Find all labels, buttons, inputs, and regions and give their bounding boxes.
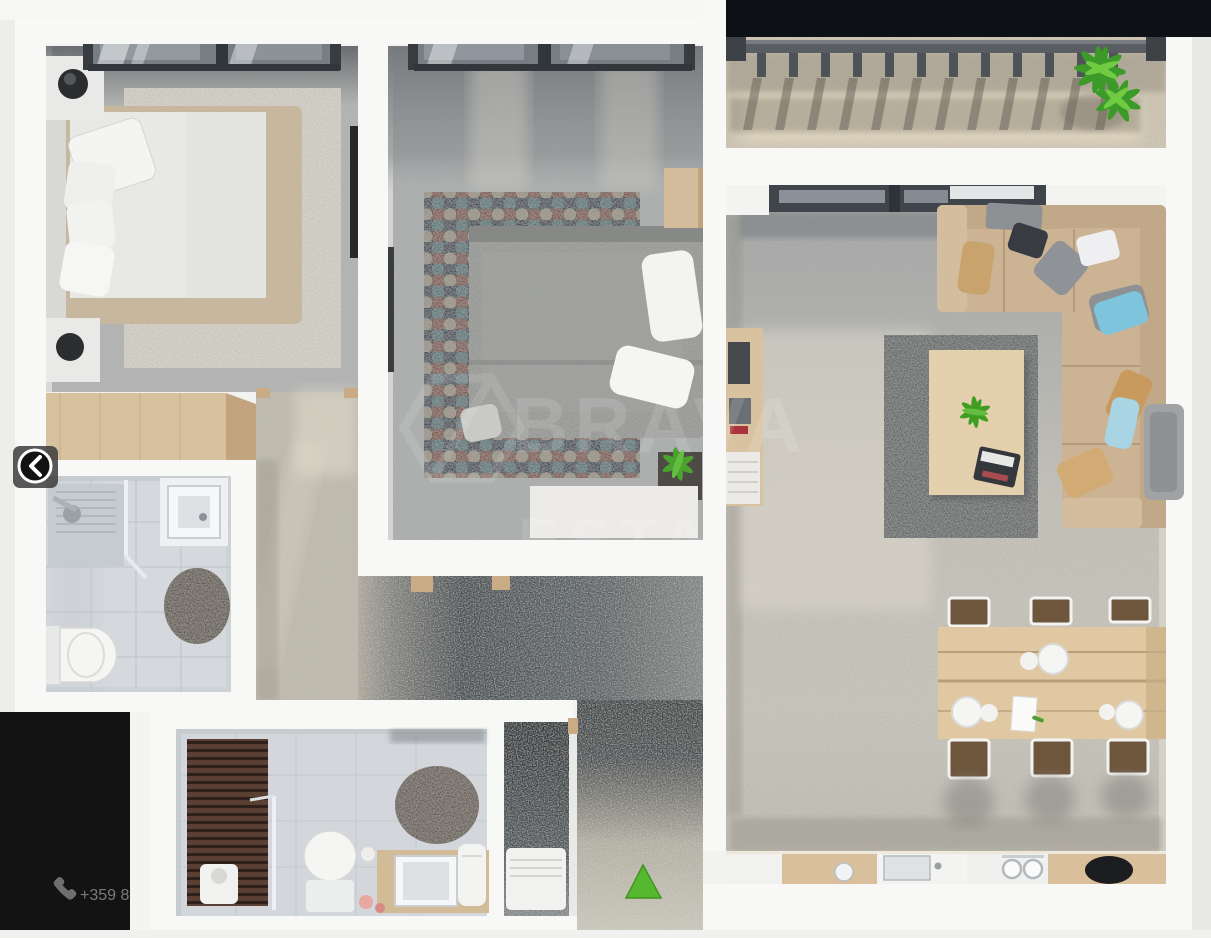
svg-text:+359 8: +359 8 (80, 887, 129, 904)
svg-text:ESTA: ESTA (518, 505, 716, 577)
svg-text:BRAVA: BRAVA (512, 381, 808, 469)
